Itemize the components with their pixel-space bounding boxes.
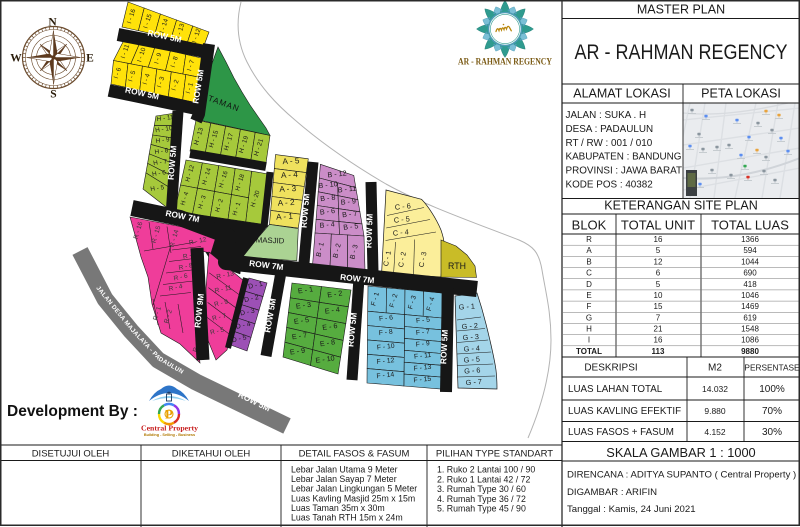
svg-text:DESA : PADAULUN: DESA : PADAULUN [566,124,654,135]
svg-text:1044: 1044 [741,257,759,266]
svg-text:690: 690 [743,269,757,278]
svg-text:TOTAL: TOTAL [576,347,602,356]
svg-text:113: 113 [652,347,665,356]
svg-text:MASTER PLAN: MASTER PLAN [637,3,725,17]
svg-text:Luas Tanah RTH 15m x 24m: Luas Tanah RTH 15m x 24m [291,513,403,523]
svg-text:R: R [586,235,592,244]
svg-text:Development By :: Development By : [7,403,138,420]
svg-text:Central Property: Central Property [141,425,199,433]
svg-text:G - 7: G - 7 [465,377,482,387]
svg-text:RTH: RTH [448,261,466,271]
svg-text:KABUPATEN : BANDUNG: KABUPATEN : BANDUNG [566,152,682,163]
svg-text:BLOK: BLOK [572,218,607,233]
svg-text:1548: 1548 [741,325,759,334]
svg-text:5. Rumah Type 45 / 90: 5. Rumah Type 45 / 90 [437,504,526,514]
svg-text:G - 2: G - 2 [461,321,478,331]
svg-text:F - 5: F - 5 [416,316,431,324]
svg-text:16: 16 [654,235,663,244]
svg-text:A: A [586,246,592,255]
svg-text:594: 594 [743,246,757,255]
svg-text:A - 4: A - 4 [281,170,299,180]
svg-text:1469: 1469 [741,302,759,311]
svg-text:DIKETAHUI OLEH: DIKETAHUI OLEH [172,449,251,460]
svg-text:PETA LOKASI: PETA LOKASI [701,87,781,101]
svg-text:PROVINSI : JAWA BARAT: PROVINSI : JAWA BARAT [566,166,683,177]
svg-text:G - 1: G - 1 [458,301,475,311]
svg-text:418: 418 [743,280,757,289]
svg-text:PILIHAN TYPE STANDART: PILIHAN TYPE STANDART [436,449,553,460]
svg-text:1086: 1086 [741,336,759,345]
svg-text:B - 6: B - 6 [319,206,335,217]
svg-text:5: 5 [656,246,661,255]
svg-text:ALAMAT LOKASI: ALAMAT LOKASI [573,87,671,101]
svg-text:A - 2: A - 2 [278,198,296,208]
svg-text:DIRENCANA : ADITYA SUPANTO ( C: DIRENCANA : ADITYA SUPANTO ( Central Pro… [567,470,796,481]
svg-text:ROW 5M: ROW 5M [438,329,450,364]
svg-text:E: E [586,291,591,300]
svg-text:Luas Kavling Masjid 25m x 15m: Luas Kavling Masjid 25m x 15m [291,493,415,503]
svg-text:1046: 1046 [741,291,759,300]
svg-text:B: B [586,257,591,266]
svg-text:S: S [50,89,56,101]
svg-text:Luas Taman 35m x 30m: Luas Taman 35m x 30m [291,503,385,513]
svg-text:ROW 5M: ROW 5M [363,213,374,248]
svg-text:100%: 100% [759,384,785,395]
svg-text:TOTAL UNIT: TOTAL UNIT [621,218,695,233]
svg-text:Lebar Jalan Lingkungan 5 Meter: Lebar Jalan Lingkungan 5 Meter [291,484,417,494]
svg-text:F - 9: F - 9 [415,340,430,348]
svg-text:LUAS FASOS + FASUM: LUAS FASOS + FASUM [568,427,674,438]
svg-text:F - 6: F - 6 [379,314,394,322]
svg-text:7: 7 [656,313,661,322]
svg-text:12: 12 [654,257,663,266]
svg-text:I: I [588,336,590,345]
svg-text:Lebar Jalan Utama 9 Meter: Lebar Jalan Utama 9 Meter [291,465,398,475]
svg-text:RT / RW : 001 / 010: RT / RW : 001 / 010 [566,138,653,149]
svg-text:G - 5: G - 5 [463,354,480,364]
svg-text:DIGAMBAR : ARIFIN: DIGAMBAR : ARIFIN [567,487,657,498]
svg-text:9880: 9880 [741,347,759,356]
svg-text:C - 6: C - 6 [394,201,411,211]
svg-text:16: 16 [654,336,663,345]
svg-text:F: F [587,302,592,311]
svg-text:10: 10 [654,291,663,300]
svg-text:LUAS LAHAN TOTAL: LUAS LAHAN TOTAL [568,384,663,395]
svg-text:A - 5: A - 5 [282,156,300,166]
svg-text:KETERANGAN SITE PLAN: KETERANGAN SITE PLAN [604,199,758,213]
svg-text:2. Ruko 1 Lantai 42 / 72: 2. Ruko 1 Lantai 42 / 72 [437,474,531,484]
svg-text:SKALA GAMBAR 1 : 1000: SKALA GAMBAR 1 : 1000 [606,445,755,460]
svg-text:DETAIL FASOS & FASUM: DETAIL FASOS & FASUM [299,449,410,460]
svg-text:Lebar Jalan Sayap 7 Meter: Lebar Jalan Sayap 7 Meter [291,474,397,484]
svg-text:5: 5 [656,280,661,289]
svg-text:B - 5: B - 5 [343,221,359,232]
svg-text:30%: 30% [762,427,782,438]
svg-text:D: D [586,280,592,289]
svg-text:G - 6: G - 6 [464,365,481,375]
svg-text:G - 3: G - 3 [462,332,479,342]
svg-text:C - 5: C - 5 [393,214,410,224]
svg-text:B - 8: B - 8 [320,193,336,204]
svg-text:Tanggal : Kamis, 24 Juni 2021: Tanggal : Kamis, 24 Juni 2021 [567,504,696,515]
svg-text:AR - RAHMAN REGENCY: AR - RAHMAN REGENCY [575,41,788,64]
svg-text:G - 4: G - 4 [463,343,480,353]
svg-text:A - 1: A - 1 [276,212,294,222]
svg-text:AR - RAHMAN REGENCY: AR - RAHMAN REGENCY [458,57,552,67]
svg-text:E: E [86,53,94,65]
svg-text:14.032: 14.032 [702,384,728,394]
svg-text:C: C [586,269,592,278]
svg-text:Building - Selling - Business: Building - Selling - Business [144,433,195,437]
svg-text:1. Ruko 2 Lantai 100 / 90: 1. Ruko 2 Lantai 100 / 90 [437,465,535,475]
svg-text:A - 3: A - 3 [279,184,297,194]
svg-text:9.880: 9.880 [704,406,726,416]
svg-text:F - 8: F - 8 [379,329,394,337]
svg-text:1366: 1366 [741,235,759,244]
svg-text:70%: 70% [762,406,782,417]
svg-text:C - 4: C - 4 [392,227,409,237]
svg-text:4.152: 4.152 [704,427,726,437]
svg-text:DISETUJUI OLEH: DISETUJUI OLEH [32,449,110,460]
svg-text:15: 15 [654,302,663,311]
svg-text:TOTAL LUAS: TOTAL LUAS [711,218,789,233]
svg-text:M2: M2 [708,363,722,374]
svg-text:LUAS KAVLING EFEKTIF: LUAS KAVLING EFEKTIF [568,406,681,417]
svg-text:G: G [586,313,592,322]
svg-text:DESKRIPSI: DESKRIPSI [584,363,637,374]
svg-text:N: N [48,17,57,29]
svg-text:B - 4: B - 4 [319,219,335,230]
svg-text:6: 6 [656,269,661,278]
svg-text:3. Rumah Type 30 / 60: 3. Rumah Type 30 / 60 [437,484,526,494]
svg-text:MASJID: MASJID [256,236,285,246]
svg-text:JALAN : SUKA . H: JALAN : SUKA . H [566,110,647,121]
svg-text:21: 21 [654,325,663,334]
svg-text:H: H [586,325,592,334]
svg-text:KODE POS : 40382: KODE POS : 40382 [566,180,653,191]
svg-text:F - 7: F - 7 [416,328,431,336]
svg-text:4. Rumah Type 36 / 72: 4. Rumah Type 36 / 72 [437,494,526,504]
svg-text:B - 7: B - 7 [342,209,358,220]
svg-text:B - 9: B - 9 [340,196,356,207]
svg-text:PERSENTASE: PERSENTASE [744,363,800,373]
svg-text:619: 619 [743,313,757,322]
svg-text:W: W [10,53,22,65]
